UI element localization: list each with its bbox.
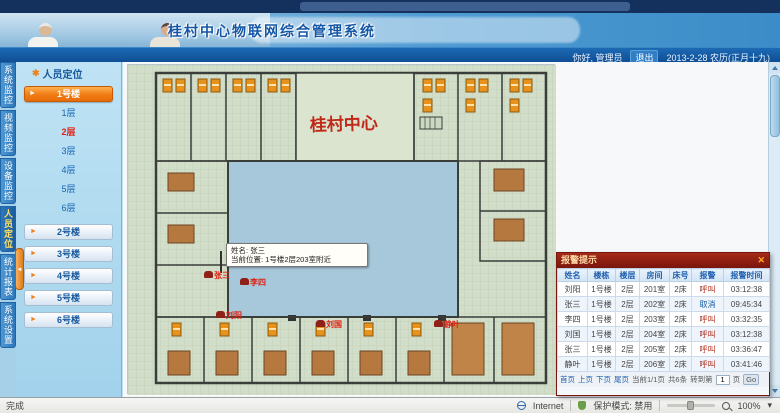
person-marker-label: 张三 (214, 271, 230, 280)
building-5-label: 5号楼 (57, 293, 80, 303)
table-row[interactable]: 张三1号楼2层202室2床取消09:45:34 (558, 297, 770, 312)
protected-mode-icon (578, 401, 586, 410)
page-goto-label: 转到第 (690, 374, 713, 385)
magnifier-icon (722, 402, 730, 410)
table-row[interactable]: 张三1号楼2层205室2床呼叫03:36:47 (558, 342, 770, 357)
alert-table: 姓名 楼栋 楼层 房间 床号 报警 报警时间 刘阳1号楼2层201室2床呼叫03… (557, 268, 770, 372)
page-next-link[interactable]: 下页 (596, 374, 611, 385)
page-input[interactable] (716, 375, 730, 385)
play-arrow-icon: ► (30, 269, 37, 283)
tooltip-anchor-line (220, 251, 222, 273)
tab-system-monitor[interactable]: 系统监控 (0, 62, 16, 108)
person-tooltip: 姓名: 张三 当前位置: 1号楼2层203室附近 (226, 243, 368, 267)
play-arrow-icon: ► (30, 313, 37, 327)
alert-panel-title: 报警提示 (561, 253, 597, 268)
status-text: 完成 (0, 399, 517, 412)
building-6-button[interactable]: ►6号楼 (24, 312, 113, 328)
page-total-text: 共6条 (668, 374, 687, 385)
scrollbar-thumb[interactable] (770, 75, 780, 137)
module-tabstrip: 系统监控 视频监控 设备监控 人员定位 统计报表 系统设置 (0, 62, 16, 397)
alert-table-header-row: 姓名 楼栋 楼层 房间 床号 报警 报警时间 (558, 269, 770, 282)
floor-list: 1层 2层 3层 4层 5层 6层 (16, 104, 121, 218)
building-1-button[interactable]: ► 1号楼 (24, 86, 113, 102)
tooltip-line-2: 当前位置: 1号楼2层203室附近 (231, 255, 363, 264)
zone-label: Internet (533, 401, 564, 411)
banner: 桂村中心物联网综合管理系统 (0, 13, 780, 47)
tab-video-monitor[interactable]: 视频监控 (0, 110, 16, 156)
app-window: 桂村中心物联网综合管理系统 你好, 管理员 退出 2013-2-28 农历(正月… (0, 0, 780, 413)
play-arrow-icon: ► (30, 291, 37, 305)
page-prev-link[interactable]: 上页 (578, 374, 593, 385)
building-3-button[interactable]: ►3号楼 (24, 246, 113, 262)
floor-item-1[interactable]: 1层 (16, 104, 121, 123)
alert-panel: 报警提示 ✕ 姓名 楼栋 楼层 房间 床号 报警 报警时间 (556, 252, 770, 396)
main-area: 系统监控 视频监控 设备监控 人员定位 统计报表 系统设置 ✱ 人员定位 ► 1… (0, 62, 780, 397)
tab-person-locate[interactable]: 人员定位 (0, 206, 16, 252)
building-sidebar: ✱ 人员定位 ► 1号楼 1层 2层 3层 4层 5层 6层 ►2号楼 ►3号楼… (16, 62, 122, 397)
tab-device-monitor[interactable]: 设备监控 (0, 158, 16, 204)
col-room: 房间 (640, 269, 670, 282)
divider (570, 400, 571, 411)
person-marker-label: 刘阳 (226, 311, 242, 320)
building-1-label: 1号楼 (57, 89, 80, 99)
building-2-button[interactable]: ►2号楼 (24, 224, 113, 240)
browser-statusbar: 完成 Internet 保护模式: 禁用 100% ▾ (0, 397, 780, 413)
col-floor: 楼层 (616, 269, 640, 282)
col-bed: 床号 (670, 269, 692, 282)
floorplan: 桂村中心 (127, 64, 555, 394)
person-icon (216, 311, 225, 318)
protected-mode-label: 保护模式: 禁用 (593, 399, 652, 412)
col-name: 姓名 (558, 269, 588, 282)
floor-item-3[interactable]: 3层 (16, 142, 121, 161)
person-icon (204, 271, 213, 278)
floorplan-canvas: 桂村中心 (123, 62, 768, 397)
person-marker-label: 刘国 (326, 320, 342, 329)
marker-overlay: 姓名: 张三 当前位置: 1号楼2层203室附近 张三 李四 刘阳 (128, 65, 556, 395)
person-marker-label: 李四 (250, 278, 266, 287)
close-icon[interactable]: ✕ (757, 253, 765, 268)
zoom-level-text: 100% (737, 401, 760, 411)
person-icon (240, 278, 249, 285)
internet-zone-icon (517, 401, 526, 410)
play-arrow-icon: ► (30, 225, 37, 239)
table-row[interactable]: 静叶1号楼2层206室2床呼叫03:41:46 (558, 357, 770, 372)
person-marker[interactable]: 刘阳 (216, 311, 242, 320)
person-marker[interactable]: 刘国 (316, 320, 342, 329)
table-row[interactable]: 李四1号楼2层203室2床呼叫03:32:35 (558, 312, 770, 327)
building-5-button[interactable]: ►5号楼 (24, 290, 113, 306)
browser-top-strip (0, 0, 780, 13)
zoom-slider-thumb[interactable] (687, 401, 694, 410)
app-title: 桂村中心物联网综合管理系统 (168, 21, 376, 41)
building-2-label: 2号楼 (57, 227, 80, 237)
col-alarm: 报警 (692, 269, 724, 282)
floor-item-2[interactable]: 2层 (16, 123, 121, 142)
floor-item-5[interactable]: 5层 (16, 180, 121, 199)
page-current-text: 当前1/1页 (632, 374, 665, 385)
page-unit-label: 页 (733, 374, 741, 385)
person-icon (316, 320, 325, 327)
person-marker[interactable]: 静叶 (434, 320, 460, 329)
scroll-down-icon[interactable] (769, 385, 780, 397)
floor-item-6[interactable]: 6层 (16, 199, 121, 218)
sidebar-collapse-handle[interactable]: ◄ (15, 248, 24, 290)
tab-system-settings[interactable]: 系统设置 (0, 302, 16, 348)
table-row[interactable]: 刘阳1号楼2层201室2床呼叫03:12:38 (558, 282, 770, 297)
person-icon (434, 320, 443, 327)
play-arrow-icon: ► (29, 87, 36, 101)
page-last-link[interactable]: 尾页 (614, 374, 629, 385)
building-4-label: 4号楼 (57, 271, 80, 281)
floor-item-4[interactable]: 4层 (16, 161, 121, 180)
person-marker[interactable]: 张三 (204, 271, 230, 280)
sidebar-title: 人员定位 (43, 66, 83, 81)
browser-chrome-highlight (300, 2, 630, 11)
chevron-down-icon[interactable]: ▾ (767, 400, 772, 411)
table-row[interactable]: 刘国1号楼2层204室2床呼叫03:12:38 (558, 327, 770, 342)
person-marker-label: 静叶 (444, 320, 460, 329)
col-building: 楼栋 (588, 269, 616, 282)
scroll-up-icon[interactable] (769, 62, 780, 74)
play-arrow-icon: ► (30, 247, 37, 261)
pagination-bar: 首页 上页 下页 尾页 当前1/1页 共6条 转到第 页 Go (557, 372, 769, 387)
elderly-man-silhouette (28, 23, 62, 47)
building-4-button[interactable]: ►4号楼 (24, 268, 113, 284)
sidebar-header: ✱ 人员定位 (16, 62, 121, 84)
person-marker[interactable]: 李四 (240, 278, 266, 287)
building-3-label: 3号楼 (57, 249, 80, 259)
divider (659, 400, 660, 411)
tab-statistics[interactable]: 统计报表 (0, 254, 16, 300)
page-first-link[interactable]: 首页 (560, 374, 575, 385)
page-go-button[interactable]: Go (743, 374, 759, 385)
spark-icon: ✱ (32, 68, 40, 79)
tooltip-line-1: 姓名: 张三 (231, 246, 363, 255)
alert-panel-titlebar: 报警提示 ✕ (557, 253, 769, 268)
zoom-slider[interactable] (667, 404, 715, 407)
col-time: 报警时间 (724, 269, 770, 282)
building-6-label: 6号楼 (57, 315, 80, 325)
subheader-bar: 你好, 管理员 退出 2013-2-28 农历(正月十九) (0, 47, 780, 62)
